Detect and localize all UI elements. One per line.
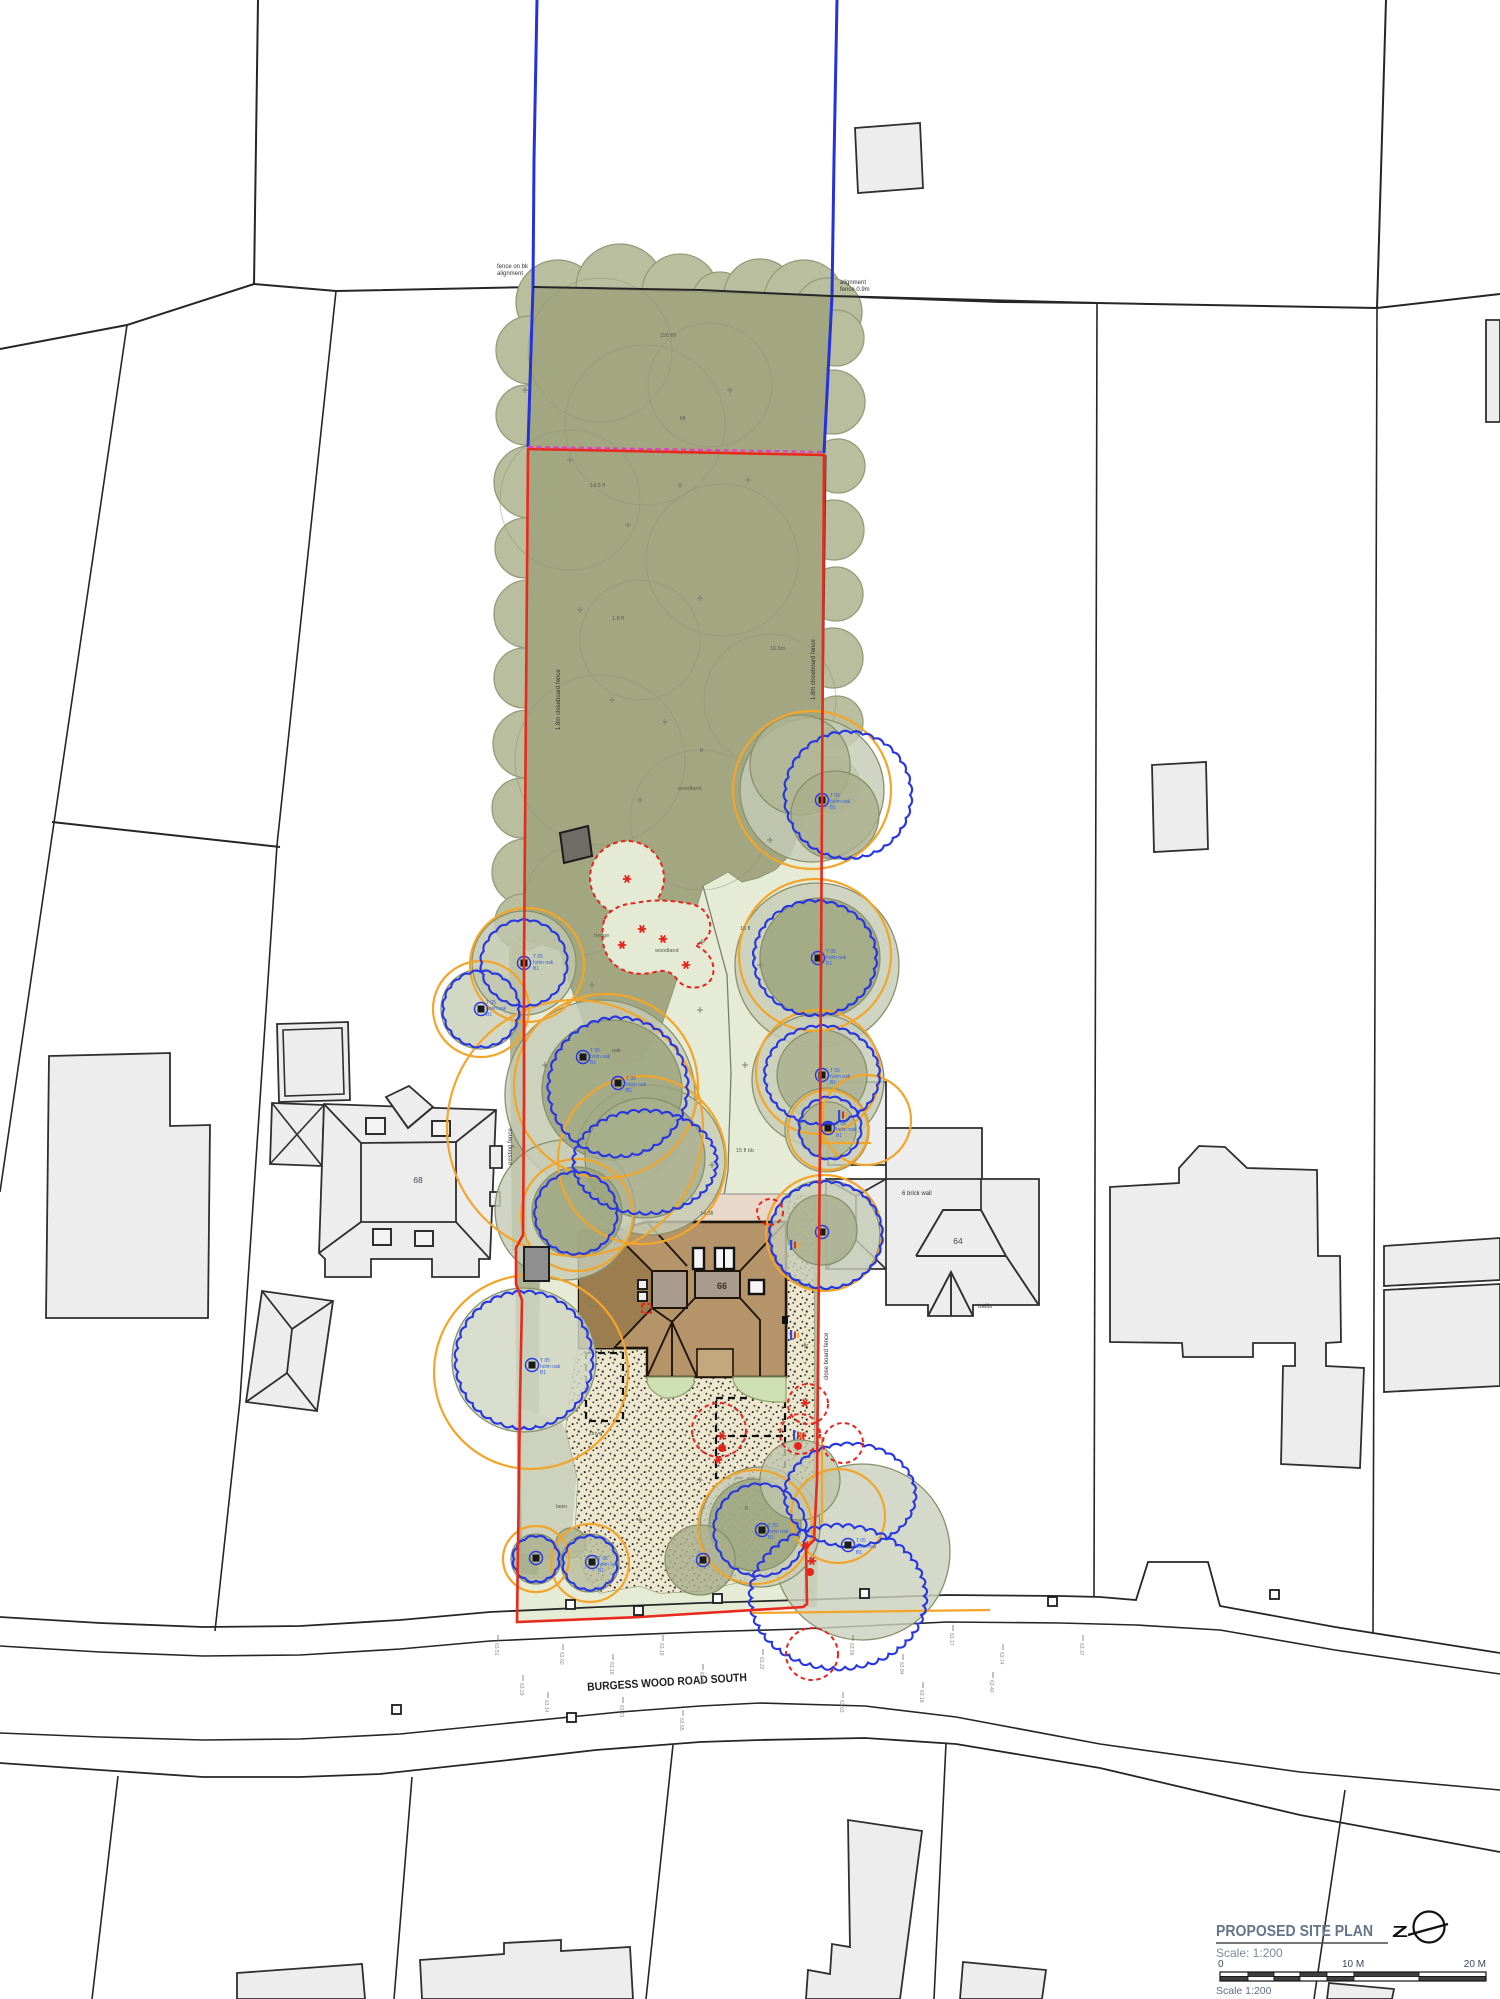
svg-text:63.74: 63.74 — [998, 1652, 1004, 1665]
svg-text:63.78: 63.78 — [698, 1672, 704, 1685]
svg-text:B1: B1 — [836, 1133, 842, 1139]
svg-text:B1: B1 — [768, 1535, 774, 1541]
svg-text:16.5m: 16.5m — [770, 646, 786, 652]
svg-text:16 fl: 16 fl — [740, 926, 750, 932]
svg-text:20 M: 20 M — [1464, 1959, 1486, 1970]
svg-text:Z: Z — [1392, 1924, 1409, 1941]
svg-text:68: 68 — [413, 1175, 423, 1185]
svg-text:0: 0 — [1218, 1959, 1224, 1970]
svg-text:B1: B1 — [533, 966, 539, 972]
svg-text:B1: B1 — [486, 1012, 492, 1018]
svg-text:63.17: 63.17 — [948, 1633, 954, 1646]
svg-text:15 fl bb: 15 fl bb — [736, 1148, 754, 1154]
svg-text:oak: oak — [612, 1048, 621, 1054]
svg-text:alignment: alignment — [840, 280, 866, 286]
svg-text:hedge: hedge — [594, 933, 609, 939]
svg-text:trellis: trellis — [978, 1304, 992, 1310]
svg-text:B1: B1 — [856, 1550, 862, 1556]
svg-text:63.63: 63.63 — [838, 1700, 844, 1713]
svg-text:B1: B1 — [830, 805, 836, 811]
svg-text:fl: fl — [745, 1506, 748, 1512]
svg-text:woodland: woodland — [654, 948, 679, 954]
svg-text:63.84: 63.84 — [898, 1662, 904, 1675]
svg-text:66: 66 — [717, 1281, 727, 1291]
svg-text:1.8 fl: 1.8 fl — [612, 616, 624, 622]
svg-text:63.51: 63.51 — [493, 1643, 499, 1656]
svg-text:fill: fill — [680, 416, 685, 422]
svg-text:63.18: 63.18 — [918, 1690, 924, 1703]
svg-text:10 M: 10 M — [1342, 1959, 1364, 1970]
svg-text:PROPOSED SITE PLAN: PROPOSED SITE PLAN — [1216, 1923, 1373, 1940]
svg-text:B1: B1 — [540, 1370, 546, 1376]
svg-text:B1: B1 — [626, 1088, 632, 1094]
svg-text:63.56: 63.56 — [848, 1643, 854, 1656]
svg-text:63.14: 63.14 — [543, 1700, 549, 1713]
svg-text:existing fence: existing fence — [508, 1128, 514, 1165]
svg-text:fl: fl — [700, 748, 703, 754]
svg-text:fence 0.9m: fence 0.9m — [840, 287, 870, 293]
svg-text:drive: drive — [590, 1431, 602, 1437]
svg-text:63.16: 63.16 — [608, 1662, 614, 1675]
svg-text:6 brick wall: 6 brick wall — [902, 1191, 932, 1197]
svg-text:14.3fl: 14.3fl — [700, 1211, 713, 1217]
svg-text:1.8m closeboard fence: 1.8m closeboard fence — [811, 639, 817, 700]
svg-text:B1: B1 — [598, 1568, 604, 1574]
svg-text:Scale: 1:200: Scale: 1:200 — [1216, 1946, 1283, 1960]
svg-text:63.22: 63.22 — [758, 1657, 764, 1670]
svg-text:63.19: 63.19 — [658, 1643, 664, 1656]
svg-text:150 fill: 150 fill — [660, 333, 676, 339]
svg-text:14.5 fl: 14.5 fl — [590, 483, 605, 489]
svg-text:63.60: 63.60 — [558, 1652, 564, 1665]
svg-text:alignment: alignment — [497, 271, 523, 277]
svg-text:B1: B1 — [830, 1080, 836, 1086]
svg-text:B1: B1 — [826, 961, 832, 967]
svg-text:Scale 1:200: Scale 1:200 — [1216, 1985, 1272, 1997]
svg-text:63.21: 63.21 — [618, 1705, 624, 1718]
svg-text:63.37: 63.37 — [1078, 1643, 1084, 1656]
svg-text:woodland: woodland — [677, 786, 702, 792]
svg-text:64: 64 — [953, 1236, 963, 1246]
svg-text:fence on bk: fence on bk — [497, 264, 529, 270]
svg-text:B1: B1 — [590, 1060, 596, 1066]
svg-text:close board fence: close board fence — [824, 1332, 830, 1380]
svg-text:63.65: 63.65 — [678, 1718, 684, 1731]
svg-text:lawn: lawn — [556, 1504, 567, 1510]
svg-text:63.29: 63.29 — [518, 1683, 524, 1696]
svg-text:63.40: 63.40 — [988, 1680, 994, 1693]
svg-text:1.8m closeboard fence: 1.8m closeboard fence — [556, 669, 562, 730]
